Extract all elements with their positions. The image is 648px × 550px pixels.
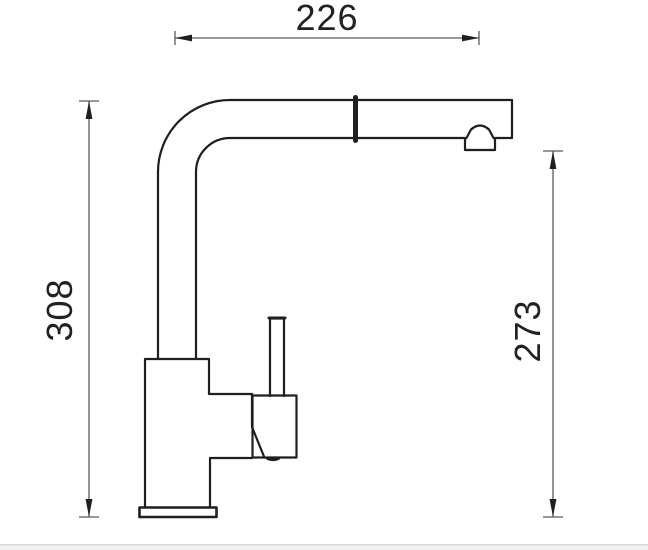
drawing-canvas: 226 308 273 — [0, 0, 648, 550]
faucet-body-path — [145, 359, 264, 507]
dimension-left: 308 — [39, 101, 99, 517]
dimension-top-arrow-right — [462, 35, 479, 42]
dimension-right-arrow-top — [550, 151, 557, 169]
pivot-ball-arc — [266, 457, 281, 461]
footer-band — [0, 545, 648, 550]
dimension-left-arrow-bottom — [86, 499, 93, 517]
dimension-top-label: 226 — [295, 0, 358, 38]
faucet-outline-group — [140, 98, 513, 518]
faucet-spout-path — [158, 100, 512, 359]
dimension-right: 273 — [507, 151, 563, 517]
dimension-left-label: 308 — [39, 278, 80, 341]
base-flange — [140, 508, 217, 518]
dimension-top: 226 — [175, 0, 479, 45]
dimension-left-line — [79, 101, 99, 517]
dimension-right-label: 273 — [507, 299, 548, 362]
dimension-top-arrow-left — [175, 35, 192, 42]
technical-drawing: 226 308 273 — [0, 0, 648, 550]
lever-handle-rod — [270, 319, 284, 397]
cartridge-housing — [253, 396, 297, 458]
dimension-right-arrow-bottom — [550, 499, 557, 517]
dimension-left-arrow-top — [86, 101, 93, 119]
spray-nozzle-path — [465, 126, 495, 151]
